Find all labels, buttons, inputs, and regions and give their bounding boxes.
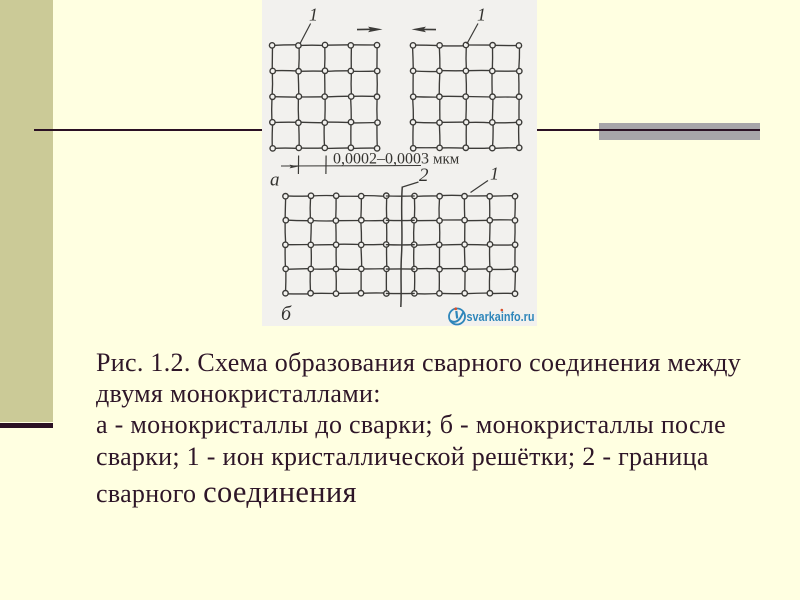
svg-text:а: а	[270, 170, 280, 191]
svg-text:б: б	[281, 303, 292, 325]
svg-text:0,0002–0,0003 мкм: 0,0002–0,0003 мкм	[333, 151, 460, 168]
svg-text:1: 1	[477, 5, 486, 25]
svg-text:2: 2	[419, 165, 429, 186]
svg-text:1: 1	[490, 164, 499, 184]
svg-text:svarkainfo.ru: svarkainfo.ru	[467, 310, 535, 324]
svg-text:1: 1	[309, 5, 318, 25]
